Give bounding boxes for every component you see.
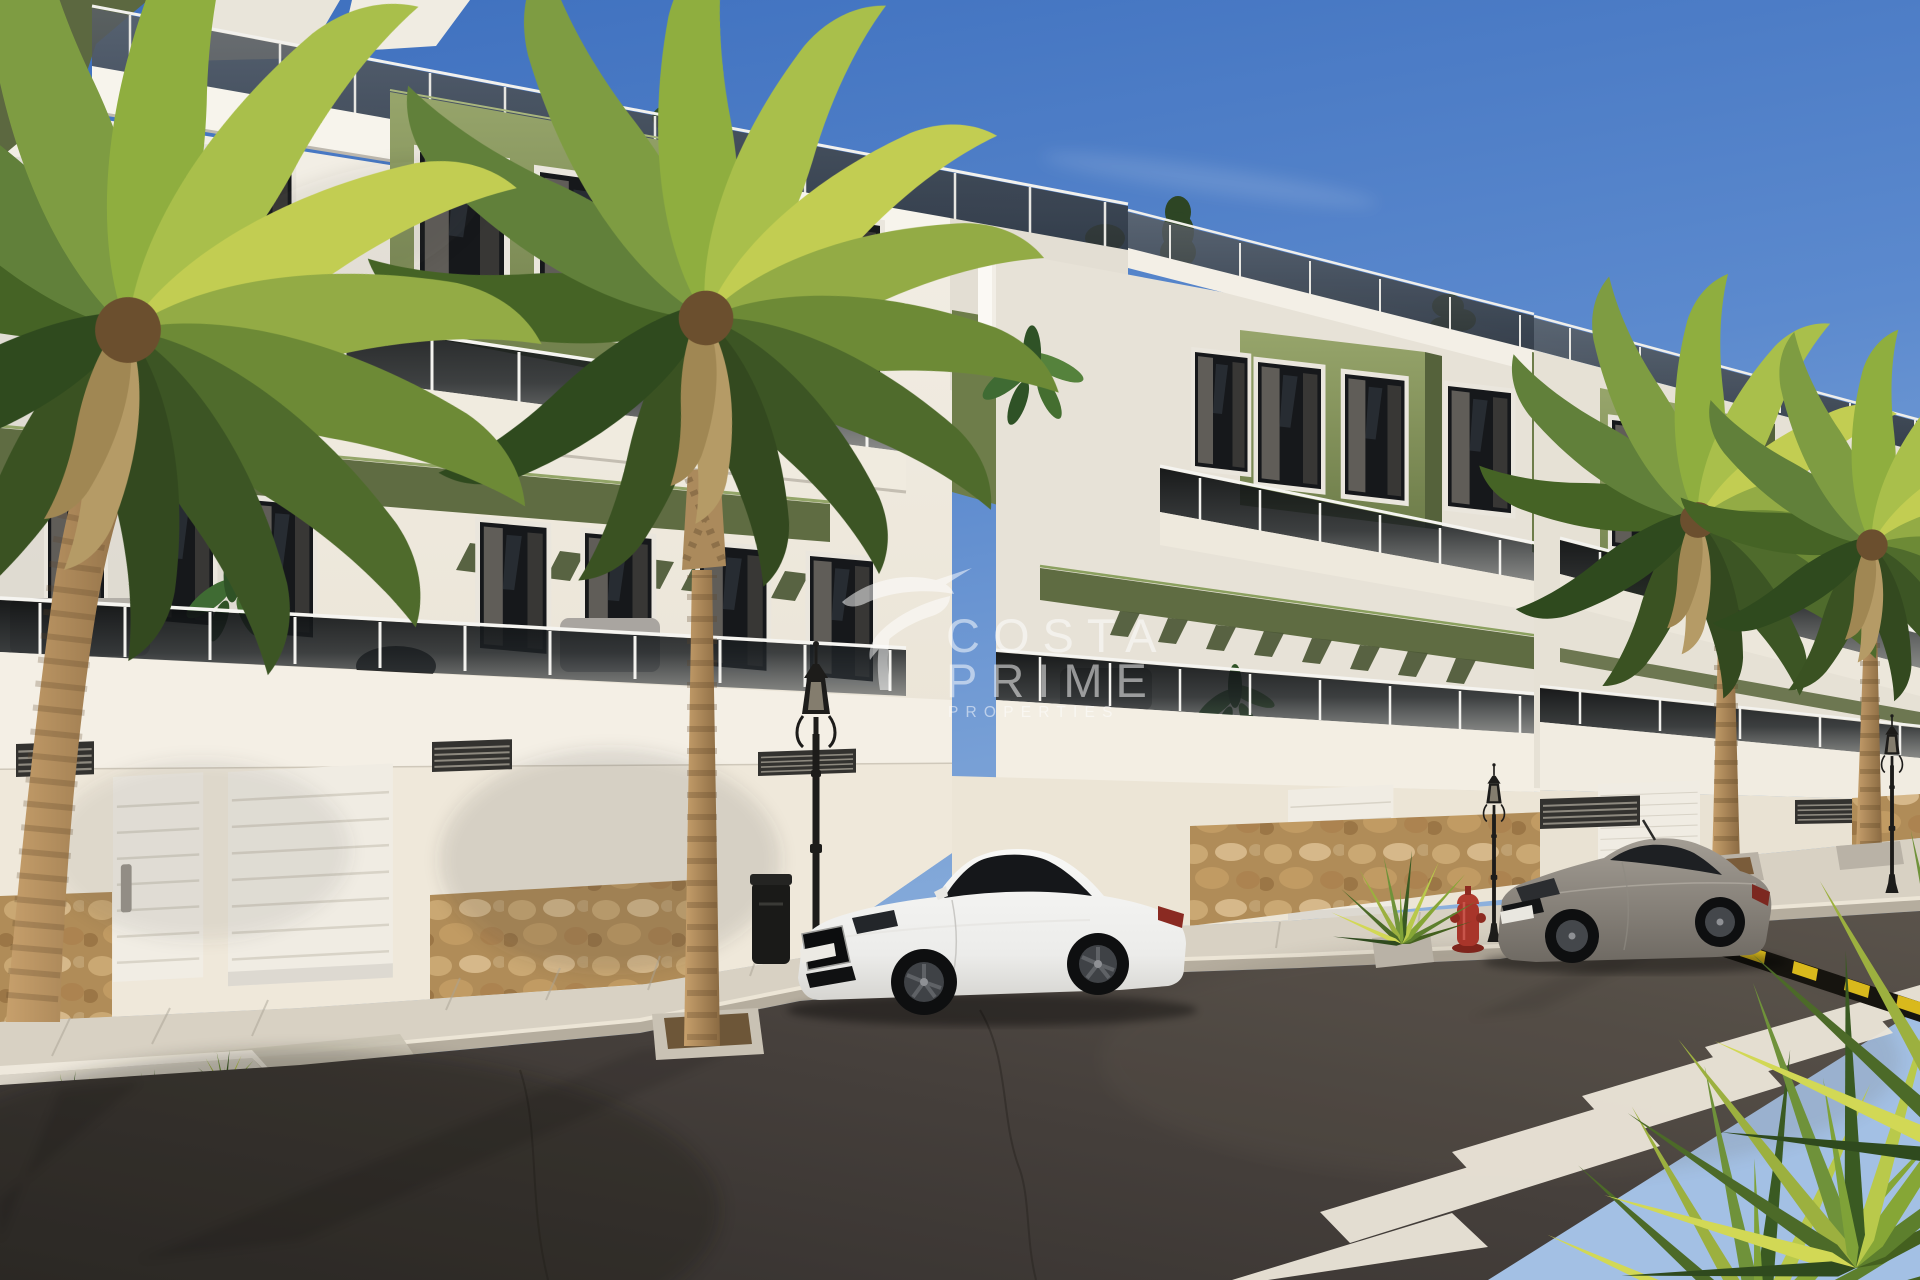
wheel <box>1545 909 1599 963</box>
vent-louver <box>758 749 856 776</box>
wheel <box>1695 897 1745 947</box>
wheel <box>891 949 957 1015</box>
watermark-line3: PROPERTIES <box>948 704 1120 721</box>
scene: COSTA PRIME PROPERTIES <box>0 0 1920 1280</box>
watermark-line2: PRIME <box>946 654 1160 707</box>
vent-louver <box>1540 796 1640 829</box>
vent-louver <box>432 739 512 772</box>
wheel <box>1067 933 1129 995</box>
litter-bin <box>750 874 792 964</box>
render-image: COSTA PRIME PROPERTIES <box>0 0 1920 1280</box>
